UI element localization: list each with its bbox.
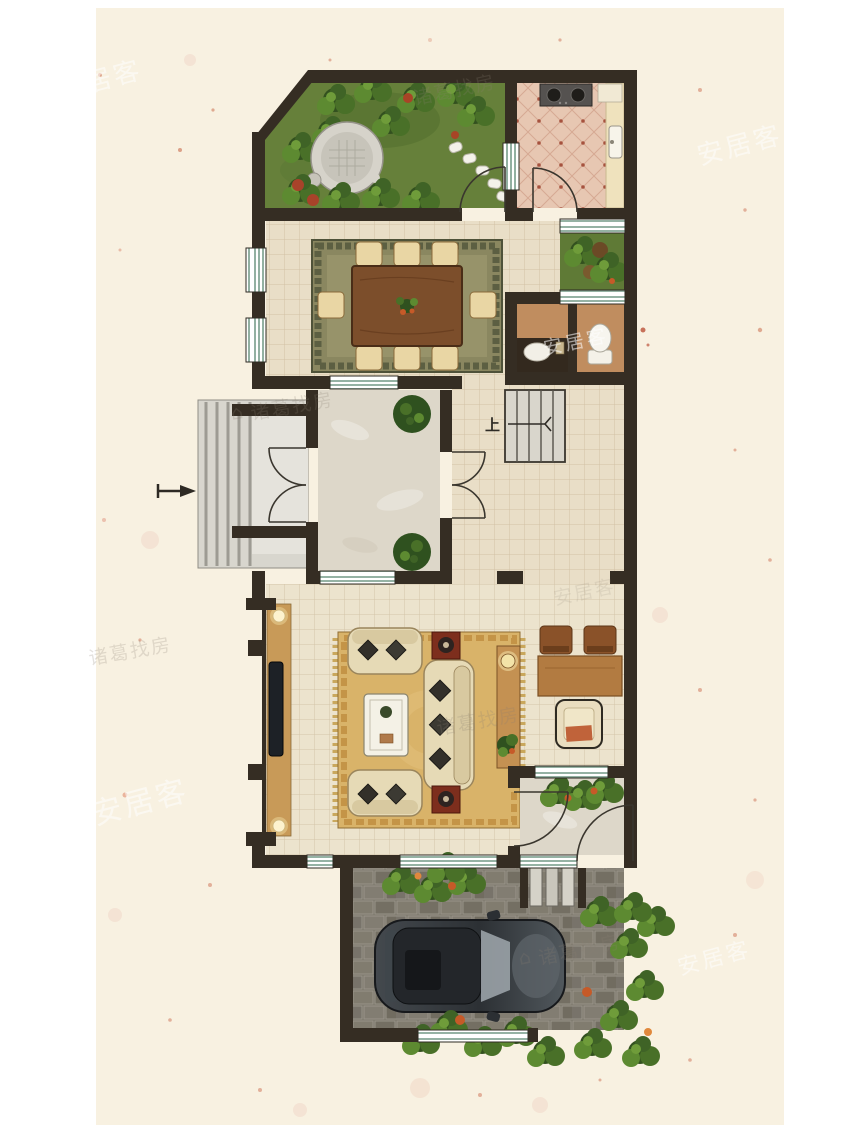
kitchen-cabinet [598,84,622,102]
dining-table [352,266,462,346]
tv [269,662,283,756]
floor-plan-page: 上 [0,0,850,1133]
window [400,855,497,868]
side-courtyard [560,233,628,290]
window [307,855,333,868]
window [246,248,266,292]
downlight [273,820,285,832]
window [246,318,266,362]
driveway-gate [418,1030,528,1042]
window [320,571,395,584]
window [330,376,398,389]
table-plant [380,706,392,718]
downlight [273,610,285,622]
window [560,290,625,304]
end-table-top [432,632,460,659]
entry-porch [198,400,308,568]
window [535,766,608,778]
desk [538,656,622,696]
stairs-up-label: 上 [485,416,500,434]
window [520,855,577,868]
car-windshield [481,930,510,1002]
floor-plan-canvas: 上 [0,0,850,1133]
hall-shrub-bottom [393,533,431,571]
hall-shrub-top [393,395,431,433]
end-table-bottom [432,786,460,813]
car-sunroof [405,950,441,990]
coffee-table [364,694,408,756]
window [560,219,625,233]
armchair [556,700,602,748]
loveseat-bottom [348,770,422,816]
entry-hall [318,390,440,571]
stove [540,84,592,106]
car [375,909,565,1022]
rear-foyer [520,773,624,855]
loveseat-top [348,628,422,674]
console-lamp [501,654,515,668]
